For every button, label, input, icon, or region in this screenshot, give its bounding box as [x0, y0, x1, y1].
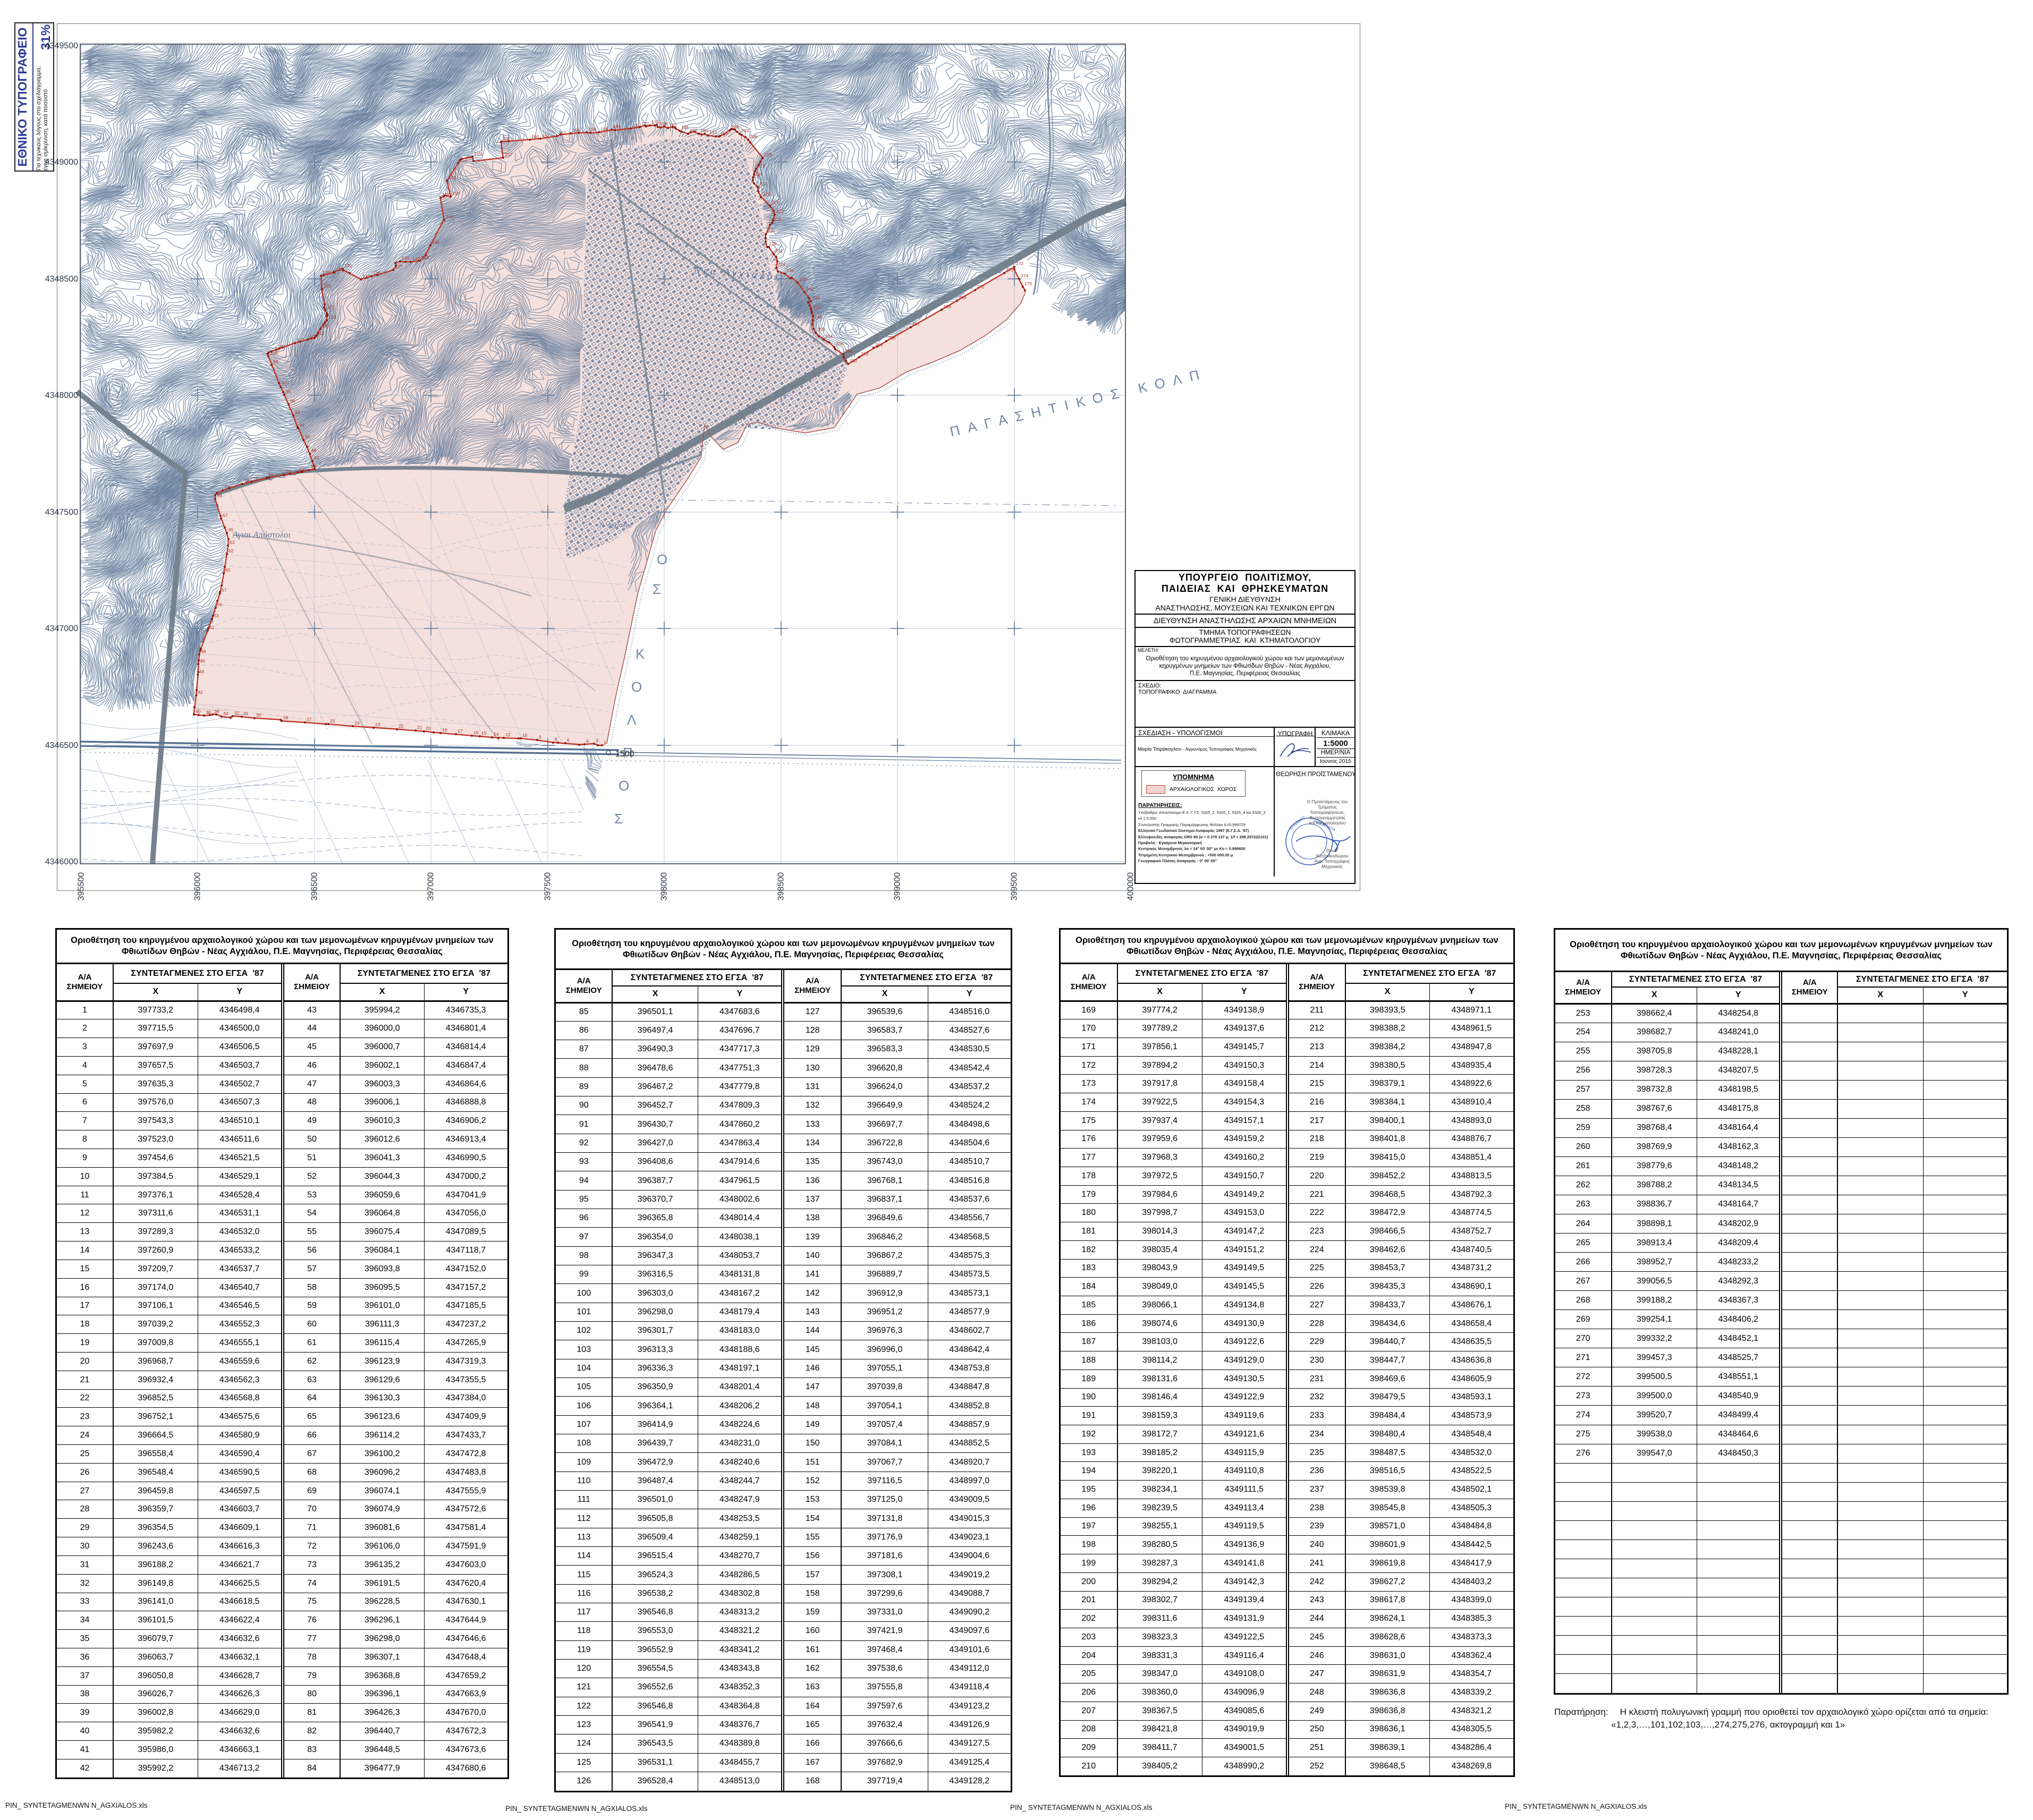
svg-text:234: 234	[778, 262, 785, 267]
svg-text:6: 6	[567, 737, 570, 743]
svg-text:397000: 397000	[427, 872, 436, 900]
svg-text:17: 17	[458, 728, 463, 734]
svg-text:107: 107	[297, 337, 304, 343]
svg-text:57: 57	[222, 588, 227, 593]
svg-text:44: 44	[199, 669, 205, 674]
svg-text:208: 208	[764, 152, 772, 157]
svg-text:63: 63	[230, 540, 235, 545]
svg-text:112: 112	[317, 330, 325, 336]
svg-text:93: 93	[295, 410, 300, 415]
svg-text:272: 272	[1016, 261, 1023, 266]
svg-text:398500: 398500	[777, 872, 786, 900]
svg-text:155: 155	[474, 151, 481, 156]
svg-text:270: 270	[977, 284, 984, 290]
svg-text:38: 38	[206, 710, 211, 715]
svg-text:400000: 400000	[1126, 872, 1136, 900]
svg-text:147: 147	[442, 192, 450, 197]
svg-text:157: 157	[505, 152, 512, 157]
svg-text:266: 266	[888, 335, 895, 341]
svg-text:224: 224	[774, 217, 781, 222]
svg-text:Σ: Σ	[614, 811, 623, 827]
svg-text:166: 166	[588, 126, 596, 132]
svg-text:263: 263	[861, 351, 868, 356]
svg-text:91: 91	[300, 422, 305, 428]
svg-text:74: 74	[244, 478, 249, 483]
svg-text:271: 271	[1006, 267, 1013, 273]
svg-text:9: 9	[539, 734, 541, 739]
svg-text:109: 109	[310, 334, 317, 339]
svg-text:125: 125	[324, 283, 331, 288]
svg-text:193: 193	[709, 130, 717, 135]
svg-text:152: 152	[460, 157, 467, 163]
svg-text:51: 51	[209, 625, 215, 630]
svg-text:14: 14	[494, 732, 499, 737]
svg-text:88: 88	[311, 448, 317, 453]
svg-text:Σ: Σ	[653, 581, 661, 597]
svg-text:53: 53	[214, 613, 219, 618]
svg-text:219: 219	[763, 191, 770, 197]
svg-text:4347000: 4347000	[45, 624, 78, 633]
svg-text:21: 21	[417, 725, 422, 730]
svg-text:55: 55	[217, 602, 223, 607]
svg-text:4349500: 4349500	[45, 41, 78, 50]
svg-text:4346000: 4346000	[45, 857, 78, 866]
svg-text:128: 128	[336, 267, 343, 272]
svg-text:158: 158	[503, 136, 510, 141]
svg-text:16: 16	[473, 730, 479, 735]
svg-text:Άγιοι Απόστολοι: Άγιοι Απόστολοι	[232, 530, 291, 540]
svg-text:99: 99	[273, 359, 278, 364]
svg-text:142: 142	[412, 256, 420, 261]
svg-text:22: 22	[399, 724, 404, 729]
svg-text:95: 95	[286, 389, 291, 394]
svg-text:274: 274	[1021, 273, 1028, 278]
svg-text:160: 160	[531, 134, 539, 139]
svg-text:175: 175	[651, 120, 659, 125]
svg-text:222: 222	[776, 209, 784, 214]
svg-text:60: 60	[225, 567, 231, 573]
svg-text:254: 254	[825, 334, 833, 339]
svg-text:146: 146	[446, 214, 453, 219]
svg-text:226: 226	[767, 228, 775, 234]
svg-text:164: 164	[572, 127, 580, 133]
svg-text:256: 256	[836, 341, 843, 346]
svg-text:27: 27	[307, 717, 312, 722]
svg-text:8: 8	[555, 737, 557, 742]
svg-text:229: 229	[769, 241, 776, 246]
svg-text:398000: 398000	[660, 872, 669, 900]
svg-text:42: 42	[198, 690, 203, 695]
svg-text:161: 161	[542, 133, 549, 138]
svg-text:151: 151	[448, 175, 456, 180]
svg-text:190: 190	[700, 128, 708, 133]
svg-text:140: 140	[402, 256, 409, 261]
svg-text:395500: 395500	[77, 872, 86, 900]
svg-text:30: 30	[256, 712, 261, 718]
svg-text:143: 143	[421, 255, 429, 260]
svg-text:79: 79	[285, 469, 291, 474]
svg-text:118: 118	[328, 314, 336, 320]
svg-text:396000: 396000	[193, 872, 202, 900]
svg-text:130: 130	[344, 263, 352, 268]
svg-text:3: 3	[596, 738, 598, 743]
svg-text:76: 76	[268, 472, 274, 478]
svg-text:181: 181	[670, 122, 677, 127]
svg-text:75: 75	[253, 476, 258, 481]
svg-text:36: 36	[214, 709, 219, 714]
svg-text:67: 67	[223, 513, 228, 518]
svg-text:100: 100	[270, 351, 277, 356]
svg-text:249: 249	[815, 314, 822, 320]
svg-text:236: 236	[786, 268, 794, 273]
svg-text:258: 258	[845, 348, 852, 354]
svg-text:90: 90	[305, 434, 310, 439]
svg-text:145: 145	[432, 240, 439, 245]
svg-text:4349000: 4349000	[45, 158, 78, 167]
svg-text:46: 46	[200, 658, 205, 664]
svg-text:178: 178	[659, 121, 667, 126]
svg-text:171: 171	[632, 123, 640, 128]
svg-text:198: 198	[731, 124, 739, 130]
svg-text:396500: 396500	[310, 872, 319, 900]
svg-text:168: 168	[600, 126, 608, 132]
svg-text:275: 275	[1024, 281, 1032, 286]
svg-text:162: 162	[558, 130, 566, 135]
svg-text:269: 269	[959, 295, 966, 300]
svg-text:240: 240	[806, 286, 814, 292]
svg-text:25: 25	[330, 718, 335, 724]
svg-text:4347500: 4347500	[45, 508, 78, 517]
svg-text:Λ: Λ	[627, 712, 637, 728]
svg-text:69: 69	[217, 493, 222, 498]
svg-text:135: 135	[373, 270, 380, 276]
svg-text:32: 32	[234, 710, 240, 716]
svg-text:262: 262	[850, 358, 857, 363]
svg-text:267: 267	[912, 321, 920, 327]
svg-text:10: 10	[522, 733, 528, 738]
svg-text:94: 94	[290, 398, 295, 404]
svg-text:Ο: Ο	[619, 778, 629, 794]
svg-text:268: 268	[943, 304, 951, 309]
svg-text:23: 23	[375, 722, 380, 727]
svg-text:195: 195	[721, 131, 728, 136]
svg-text:Ν. Αγχίαλος: Ν. Αγχίαλος	[599, 521, 632, 529]
svg-text:126: 126	[323, 270, 330, 275]
svg-text:4346500: 4346500	[45, 741, 78, 750]
svg-text:18: 18	[442, 727, 447, 733]
svg-text:72: 72	[224, 484, 230, 490]
svg-text:203: 203	[741, 128, 749, 133]
svg-text:246: 246	[813, 305, 820, 310]
svg-text:122: 122	[327, 304, 334, 310]
svg-text:399500: 399500	[1010, 872, 1019, 900]
svg-text:206: 206	[750, 134, 757, 139]
svg-text:217: 217	[759, 181, 767, 186]
svg-text:12: 12	[505, 732, 511, 737]
svg-text:137: 137	[395, 264, 402, 269]
svg-text:239: 239	[799, 277, 807, 282]
svg-text:242: 242	[812, 295, 820, 301]
svg-text:15: 15	[481, 730, 487, 736]
svg-text:20: 20	[426, 726, 431, 731]
svg-text:Κ: Κ	[636, 646, 645, 662]
svg-text:1500: 1500	[615, 750, 634, 759]
svg-text:24: 24	[354, 720, 360, 726]
svg-text:62: 62	[228, 548, 234, 554]
svg-text:133: 133	[362, 274, 370, 279]
svg-text:399000: 399000	[893, 872, 902, 900]
svg-text:48: 48	[201, 649, 206, 654]
svg-text:169: 169	[613, 124, 621, 129]
svg-text:115: 115	[322, 323, 329, 328]
svg-text:211: 211	[758, 163, 765, 168]
svg-text:1: 1	[604, 739, 606, 745]
svg-text:28: 28	[283, 715, 289, 720]
svg-text:31: 31	[243, 711, 249, 716]
svg-text:397500: 397500	[544, 872, 553, 900]
svg-text:40: 40	[196, 709, 201, 714]
svg-text:4: 4	[586, 738, 589, 744]
svg-text:231: 231	[775, 248, 783, 253]
svg-text:34: 34	[223, 711, 228, 716]
svg-text:84: 84	[311, 464, 316, 470]
svg-text:4348500: 4348500	[45, 275, 78, 284]
svg-text:97: 97	[282, 381, 287, 386]
svg-text:220: 220	[772, 200, 779, 205]
svg-text:87: 87	[314, 455, 319, 461]
svg-text:264: 264	[875, 342, 883, 347]
svg-text:Ο: Ο	[631, 679, 642, 695]
svg-text:4348000: 4348000	[45, 391, 78, 400]
svg-text:172: 172	[641, 121, 649, 126]
svg-text:104: 104	[278, 344, 285, 349]
svg-text:185: 185	[681, 125, 689, 130]
svg-text:214: 214	[755, 172, 762, 177]
svg-text:187: 187	[690, 128, 697, 133]
svg-text:252: 252	[817, 327, 825, 332]
svg-text:Ο: Ο	[657, 551, 667, 567]
svg-text:81: 81	[299, 466, 304, 472]
svg-text:150: 150	[452, 191, 460, 196]
